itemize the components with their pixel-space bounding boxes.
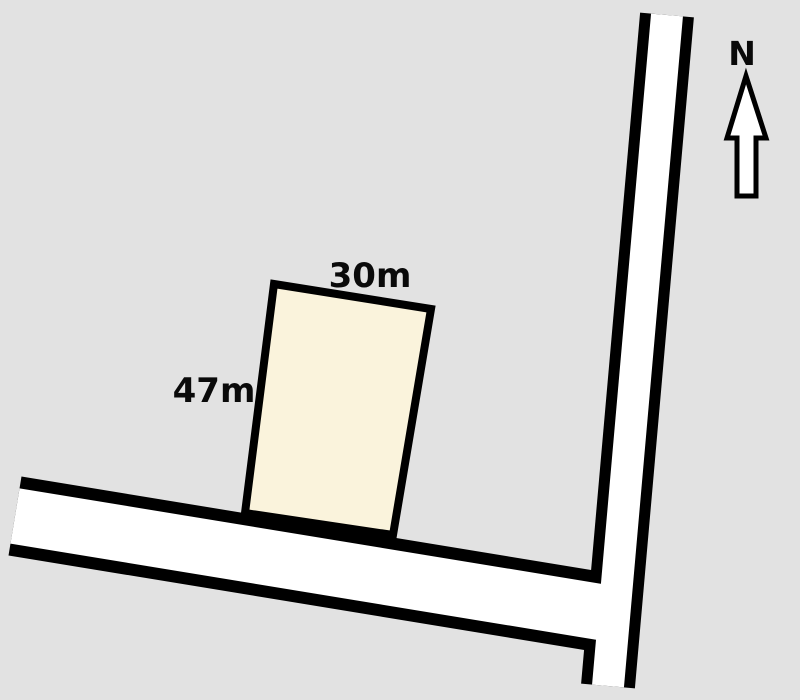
land-parcel bbox=[245, 284, 431, 535]
site-plan-figure: 30m 47m N bbox=[0, 0, 800, 700]
site-plan-canvas: 30m 47m N bbox=[0, 0, 800, 700]
parcel-top-dimension-label: 30m bbox=[329, 256, 412, 296]
parcel-side-dimension-label: 47m bbox=[173, 371, 256, 411]
north-label: N bbox=[728, 34, 756, 73]
